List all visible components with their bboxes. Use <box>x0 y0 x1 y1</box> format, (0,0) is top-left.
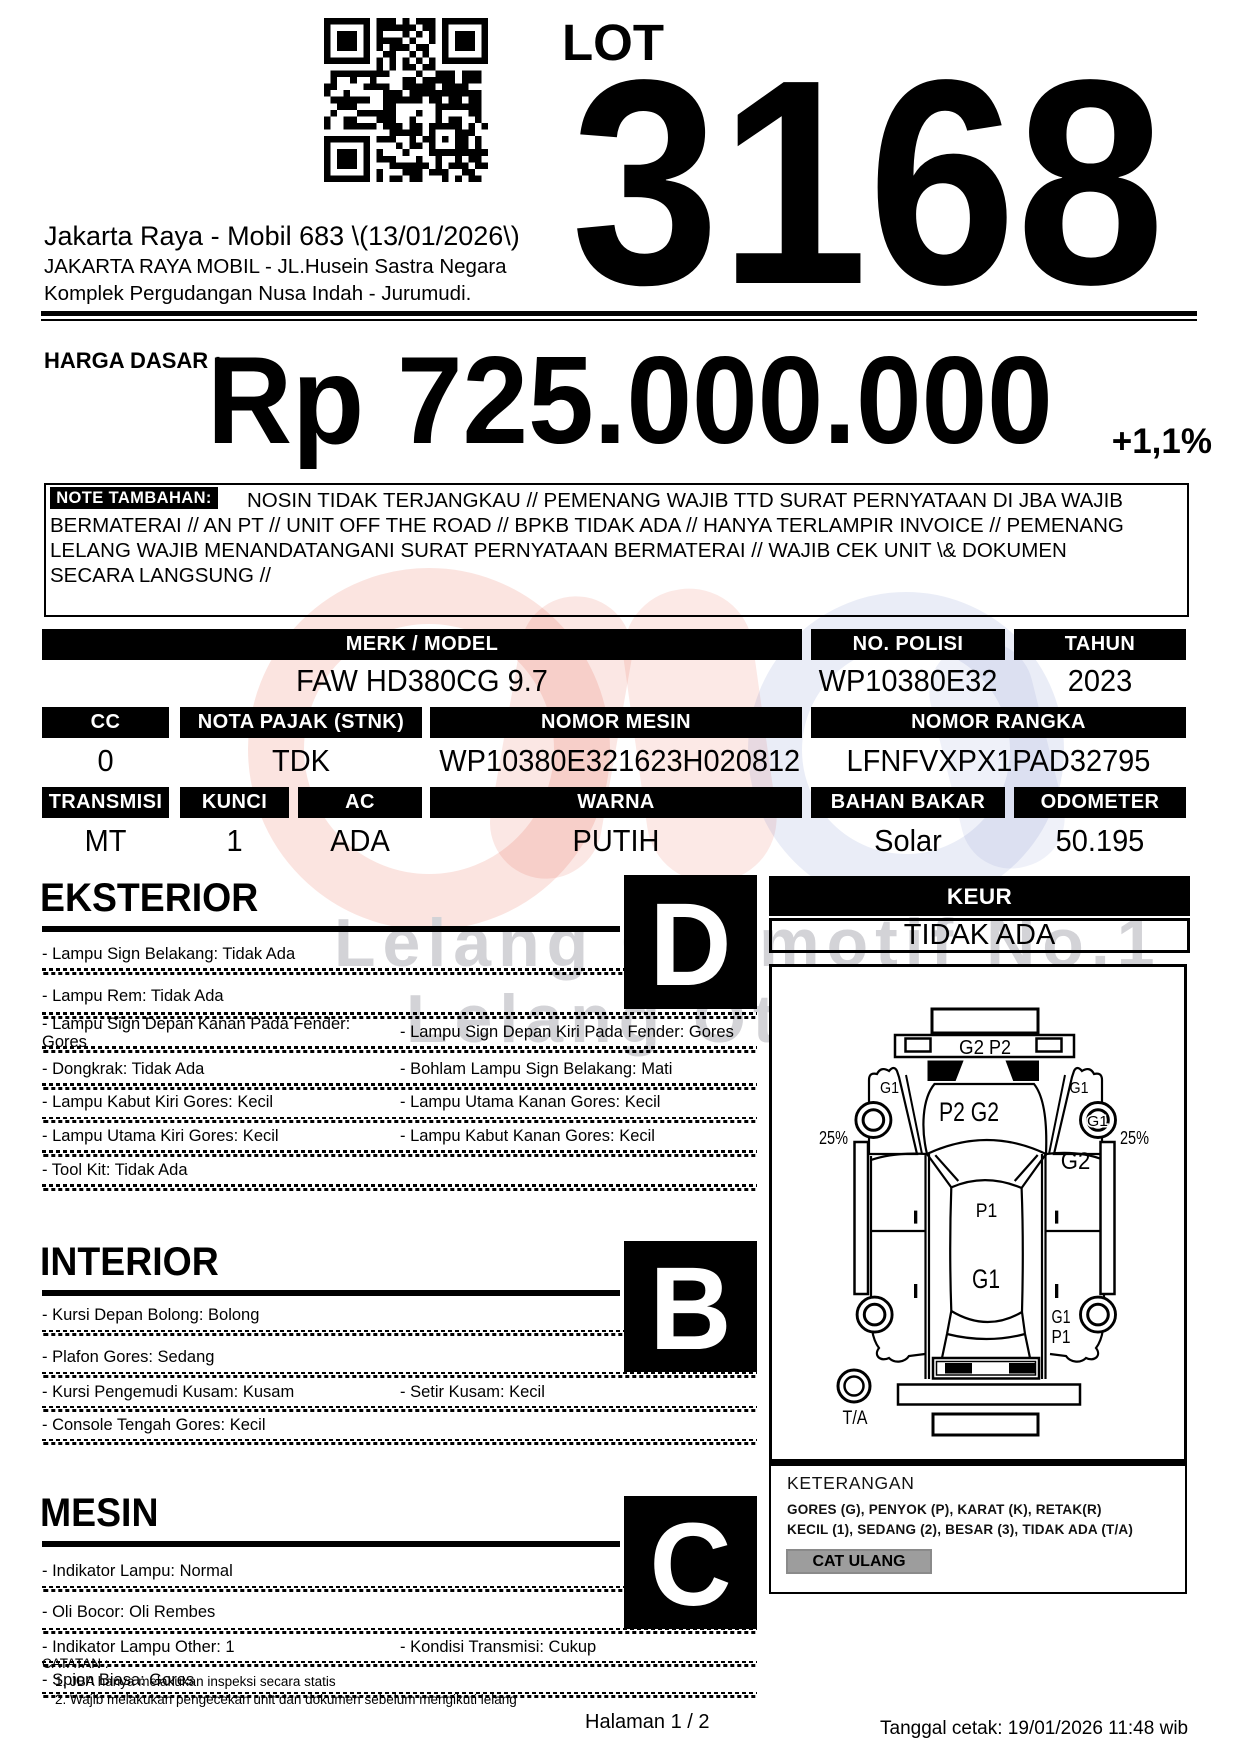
svg-text:P2 G2: P2 G2 <box>939 1097 999 1127</box>
svg-text:T/A: T/A <box>843 1408 868 1429</box>
svg-text:P1: P1 <box>1052 1327 1071 1347</box>
svg-text:G1: G1 <box>1070 1080 1089 1097</box>
svg-text:G1: G1 <box>972 1264 1000 1294</box>
svg-text:G1: G1 <box>880 1080 899 1097</box>
svg-text:G1: G1 <box>1087 1113 1108 1130</box>
svg-text:G2: G2 <box>959 1037 984 1059</box>
svg-text:P2: P2 <box>989 1037 1011 1059</box>
svg-text:25%: 25% <box>819 1128 848 1148</box>
svg-text:G2: G2 <box>1061 1148 1091 1175</box>
svg-text:25%: 25% <box>1120 1128 1149 1148</box>
svg-text:G1: G1 <box>1052 1307 1071 1327</box>
svg-text:P1: P1 <box>976 1200 998 1222</box>
